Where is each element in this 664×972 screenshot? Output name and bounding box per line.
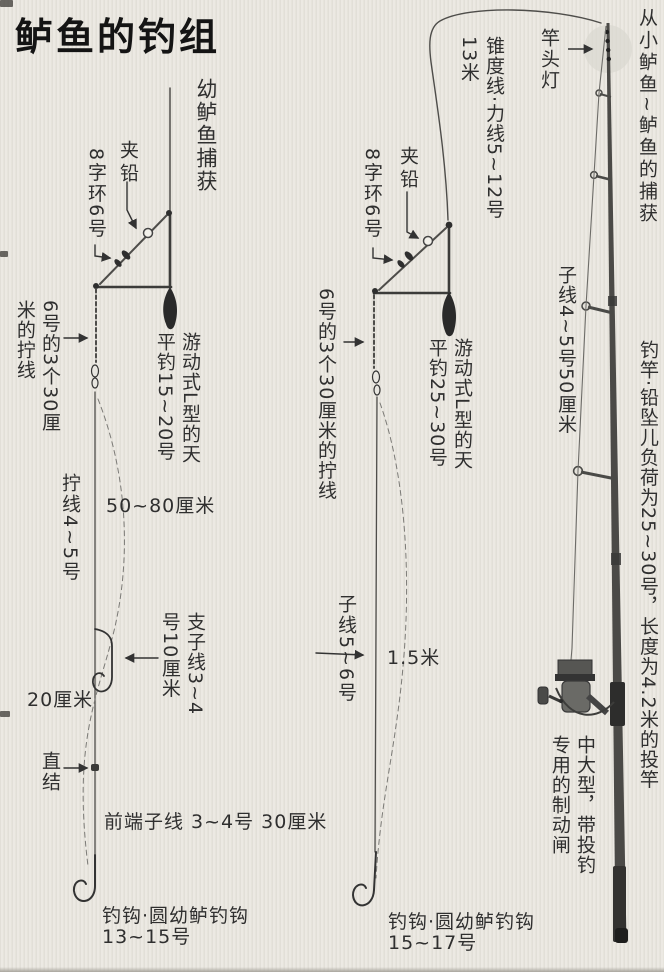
label-reel-spec: 中大型，带投钓专用的制动闸 bbox=[539, 735, 597, 881]
label-middle-twist-segments: 6号的3个30厘米的拧线 bbox=[312, 288, 338, 518]
middle-bottom-hook bbox=[353, 852, 376, 905]
label-taper-line: 锥度线·力线5~12号13米 bbox=[452, 36, 506, 226]
label-rod-sub-line: 子线4~5号50厘米 bbox=[552, 265, 578, 435]
left-bottom-hook bbox=[74, 855, 95, 901]
left-boom-top-joint bbox=[166, 210, 172, 216]
scan-artifact bbox=[0, 0, 13, 7]
label-left-figure8-swivel: 8字环6号 bbox=[84, 148, 108, 252]
label-middle-sub-line: 子线5~6号 bbox=[332, 594, 358, 706]
label-juvenile-catch: 幼鲈鱼捕获 bbox=[193, 78, 219, 204]
label-left-front-leader: 前端子线 3~4号 30厘米 bbox=[104, 812, 327, 833]
spinning-reel bbox=[538, 660, 614, 715]
middle-sinker bbox=[442, 292, 456, 336]
label-left-span-lower: 20厘米 bbox=[27, 690, 93, 711]
label-middle-boom: 游动式L型的天平钓25~30号 bbox=[422, 338, 474, 474]
label-middle-clamp-lead: 夹铅 bbox=[396, 146, 420, 198]
label-left-clamp-lead: 夹铅 bbox=[116, 140, 140, 192]
label-left-hook-name: 钓钩·圆幼鲈钓钩 bbox=[102, 906, 249, 927]
middle-boom-elbow bbox=[372, 288, 378, 294]
page-edge-shadow bbox=[0, 967, 664, 972]
reel-spool bbox=[558, 660, 592, 676]
reel-handle-knob bbox=[538, 687, 548, 704]
label-rod-range-note: 从小鲈鱼~鲈鱼的捕获 bbox=[631, 8, 659, 244]
left-line-swivel bbox=[92, 365, 99, 388]
label-left-hook: 钓钩·圆幼鲈钓钩 13~15号 bbox=[102, 906, 249, 947]
middle-clamp-lead-bead bbox=[424, 237, 433, 246]
rod-butt-cap bbox=[615, 928, 628, 943]
left-clamp-lead-bead bbox=[144, 229, 153, 238]
middle-line-swivel bbox=[373, 371, 381, 395]
label-left-twist-segments: 6号的3个30厘米的拧线 bbox=[10, 300, 62, 438]
label-left-twist-line: 拧线4~5号 bbox=[56, 473, 82, 585]
scan-artifact bbox=[0, 711, 10, 717]
label-left-branch-line: 支子线3~4号10厘米 bbox=[155, 612, 207, 732]
label-middle-span: 1.5米 bbox=[387, 648, 440, 669]
left-direct-knot-mark bbox=[91, 764, 99, 771]
label-left-hook-size: 13~15号 bbox=[102, 927, 249, 948]
rod-ferrule-1 bbox=[608, 296, 617, 306]
scan-artifact bbox=[0, 251, 8, 257]
label-left-boom: 游动式L型的天平钓15~20号 bbox=[150, 332, 202, 468]
label-middle-hook-name: 钓钩·圆幼鲈钓钩 bbox=[388, 912, 535, 933]
left-sinker bbox=[163, 287, 177, 329]
label-tip-light: 竿头灯 bbox=[537, 28, 561, 98]
scanned-diagram-page: 鲈鱼的钓组 幼鲈鱼捕获 夹铅 8字环6号 6号的3个30厘米的拧线 游动式L型的… bbox=[0, 0, 664, 972]
left-figure8-swivel-beads bbox=[113, 249, 132, 268]
left-branch-hook bbox=[93, 629, 112, 691]
label-rod-spec: 钓竿·铅坠儿负荷为25~30号，长度为4.2米的投竿 bbox=[632, 340, 660, 802]
reel-crank-pin bbox=[559, 699, 563, 703]
label-middle-hook: 钓钩·圆幼鲈钓钩 15~17号 bbox=[388, 912, 535, 953]
label-left-span-upper: 50~80厘米 bbox=[106, 496, 215, 517]
left-boom-diagonal bbox=[100, 215, 167, 284]
label-middle-figure8-swivel: 8字环6号 bbox=[360, 148, 384, 252]
reel-spool-skirt bbox=[555, 674, 595, 681]
label-middle-hook-size: 15~17号 bbox=[388, 933, 535, 954]
rod-ferrule-2 bbox=[611, 553, 621, 565]
middle-slack-line bbox=[376, 403, 407, 878]
rod-blank bbox=[607, 23, 627, 941]
reel-body bbox=[562, 681, 590, 712]
label-left-direct-knot: 直结 bbox=[38, 751, 62, 799]
middle-leader-line bbox=[375, 397, 377, 852]
page-title: 鲈鱼的钓组 bbox=[15, 18, 220, 56]
